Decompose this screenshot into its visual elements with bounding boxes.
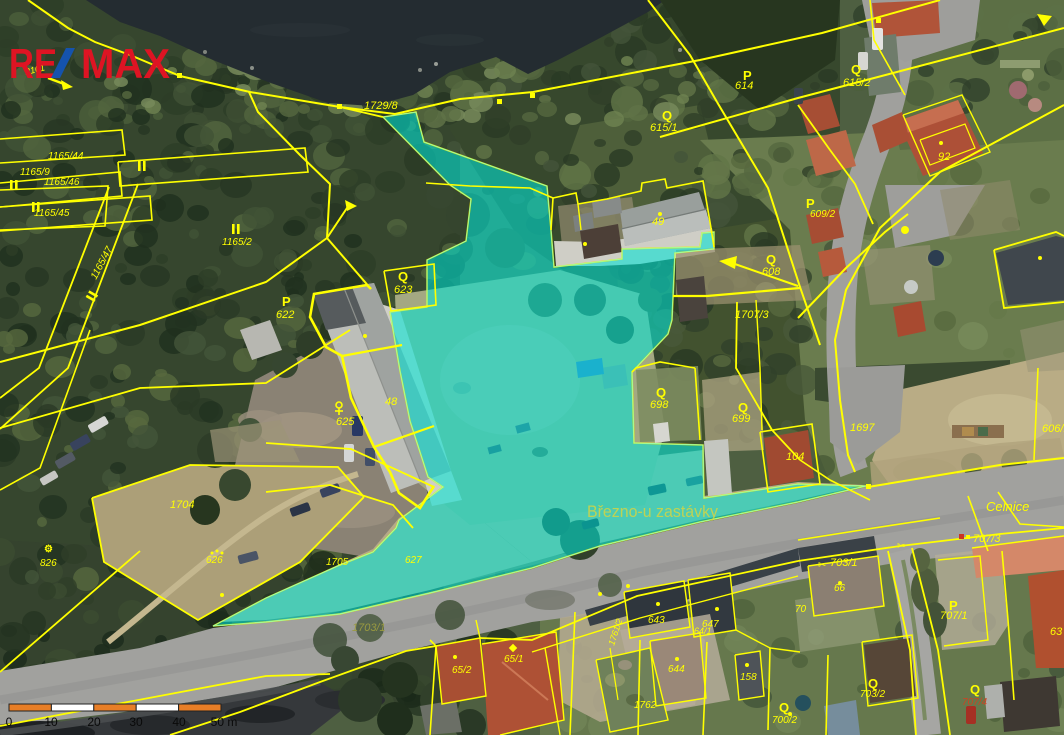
svg-text:MAX: MAX: [81, 40, 170, 87]
svg-text:30: 30: [129, 715, 143, 729]
svg-text:1697: 1697: [850, 422, 875, 434]
svg-text:1703/1: 1703/1: [352, 622, 386, 634]
svg-text:63: 63: [1050, 626, 1063, 638]
svg-text:158: 158: [740, 672, 757, 683]
svg-text:104: 104: [786, 451, 804, 463]
svg-text:615/2: 615/2: [843, 77, 871, 89]
svg-text:Q: Q: [662, 108, 672, 123]
svg-text:627: 627: [405, 555, 422, 566]
svg-text:1165/45: 1165/45: [34, 208, 70, 219]
svg-text:698: 698: [650, 399, 669, 411]
svg-text:70: 70: [795, 604, 807, 615]
svg-text:606/1: 606/1: [1042, 423, 1064, 435]
svg-text:65/1: 65/1: [504, 654, 523, 665]
svg-text:10: 10: [44, 715, 58, 729]
svg-text:65/2: 65/2: [452, 665, 472, 676]
svg-text:1165/46: 1165/46: [44, 177, 80, 188]
svg-text:48: 48: [385, 396, 398, 408]
svg-text:✂: ✂: [897, 541, 905, 552]
svg-text:Q: Q: [851, 62, 861, 77]
svg-text:0: 0: [6, 715, 13, 729]
svg-text:703/1: 703/1: [830, 557, 858, 569]
svg-text:Q: Q: [970, 682, 980, 697]
svg-text:826: 826: [40, 558, 57, 569]
svg-text:64/1: 64/1: [694, 626, 712, 636]
svg-text:703/2: 703/2: [860, 689, 885, 700]
svg-text:699: 699: [732, 413, 750, 425]
svg-text:644: 644: [668, 664, 685, 675]
svg-text:66: 66: [834, 583, 846, 594]
svg-text:49: 49: [652, 216, 664, 228]
svg-text:RE: RE: [9, 40, 57, 87]
svg-text:20: 20: [87, 715, 101, 729]
svg-text:Q: Q: [398, 269, 408, 284]
svg-text:1707/3: 1707/3: [735, 309, 770, 321]
svg-text:1165/44: 1165/44: [48, 151, 84, 162]
svg-text:622: 622: [276, 309, 294, 321]
svg-text:1705: 1705: [326, 557, 349, 568]
svg-text:615/1: 615/1: [650, 122, 678, 134]
svg-text:1729/8: 1729/8: [364, 100, 399, 112]
svg-text:609/2: 609/2: [810, 209, 835, 220]
svg-text:614: 614: [735, 80, 753, 92]
svg-text:40: 40: [172, 715, 186, 729]
svg-text:P: P: [282, 294, 291, 309]
svg-text:50 m: 50 m: [211, 715, 238, 729]
svg-text:643: 643: [648, 615, 665, 626]
svg-text:Březno-u zastávky: Březno-u zastávky: [587, 502, 718, 521]
svg-text:626: 626: [206, 555, 223, 566]
svg-text:Q: Q: [779, 700, 789, 715]
svg-text:707/4: 707/4: [962, 697, 987, 708]
svg-text:623: 623: [394, 284, 413, 296]
svg-text:1762: 1762: [634, 700, 657, 711]
svg-text:700/2: 700/2: [772, 715, 797, 726]
svg-text:Q: Q: [766, 252, 776, 267]
svg-text:707/1: 707/1: [940, 610, 968, 622]
svg-text:Celnice: Celnice: [986, 499, 1029, 514]
svg-text:Q: Q: [656, 385, 666, 400]
svg-text:1704: 1704: [170, 499, 194, 511]
svg-text:707/3: 707/3: [973, 533, 1001, 545]
svg-text:⚙: ⚙: [44, 544, 53, 555]
svg-text:625: 625: [336, 416, 355, 428]
svg-text:608: 608: [762, 266, 781, 278]
svg-text:92: 92: [938, 151, 950, 163]
svg-text:1165/2: 1165/2: [222, 237, 252, 248]
svg-text:✂: ✂: [818, 560, 826, 571]
